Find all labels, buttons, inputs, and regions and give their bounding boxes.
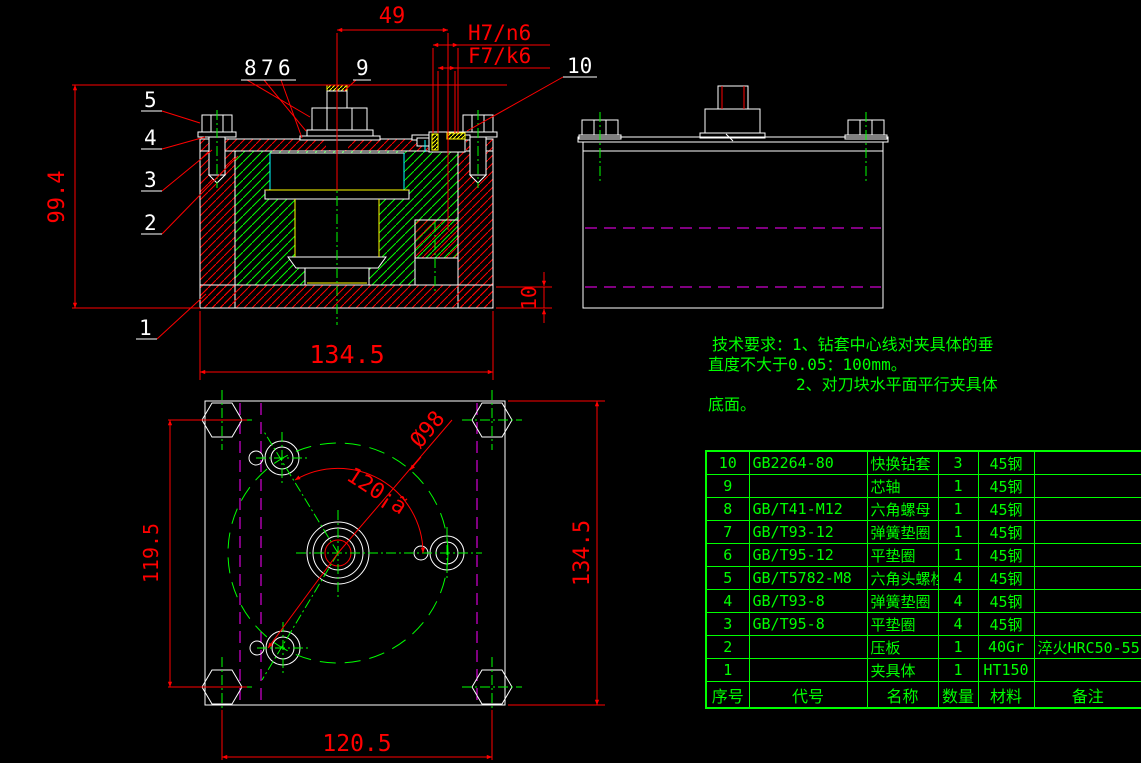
dim-99-4: 99.4	[45, 171, 70, 224]
bom-qty: 4	[938, 613, 978, 636]
bom-material: 45钢	[978, 567, 1034, 590]
bom-qty: 1	[938, 544, 978, 567]
bom-seq: 2	[706, 636, 749, 659]
bom-qty: 3	[938, 451, 978, 475]
bom-material: 45钢	[978, 544, 1034, 567]
bom-remark	[1034, 544, 1141, 567]
dim-49: 49	[379, 4, 406, 29]
bom-remark	[1034, 590, 1141, 613]
side-hidden-lines	[585, 228, 881, 287]
bom-code	[749, 475, 867, 498]
bom-name: 弹簧垫圈	[867, 590, 938, 613]
bom-header-code: 代号	[749, 682, 867, 709]
dim-dia98: Ø98	[406, 407, 451, 454]
bom-remark	[1034, 475, 1141, 498]
bom-material: 45钢	[978, 613, 1034, 636]
bom-seq: 9	[706, 475, 749, 498]
bom-name: 夹具体	[867, 659, 938, 682]
label-item-3: 3	[144, 168, 157, 192]
bom-header-name: 名称	[867, 682, 938, 709]
bom-code: GB/T5782-M8	[749, 567, 867, 590]
bom-code: GB2264-80	[749, 451, 867, 475]
bom-remark: 淬火HRC50-55	[1034, 636, 1141, 659]
bom-seq: 10	[706, 451, 749, 475]
bom-row-6: 6 GB/T95-12 平垫圈 1 45钢	[706, 544, 1141, 567]
bom-remark	[1034, 451, 1141, 475]
bom-name: 快换钻套	[867, 451, 938, 475]
cad-drawing-canvas: 49 H7/n6 F7/k6 99.4 134.5 10	[0, 0, 1141, 763]
label-item-4: 4	[144, 126, 157, 150]
bom-qty: 4	[938, 567, 978, 590]
bom-name: 平垫圈	[867, 544, 938, 567]
bom-name: 芯轴	[867, 475, 938, 498]
bom-qty: 1	[938, 636, 978, 659]
bom-seq: 3	[706, 613, 749, 636]
section-view	[198, 85, 497, 325]
dim-134-5-plan: 134.5	[570, 520, 595, 586]
bom-header-row: 序号 代号 名称 数量 材料 备注	[706, 682, 1141, 709]
bom-seq: 6	[706, 544, 749, 567]
bom-name: 压板	[867, 636, 938, 659]
label-item-5: 5	[144, 88, 157, 112]
locator-step-block	[415, 220, 458, 258]
bom-row-8: 8 GB/T41-M12 六角螺母 1 45钢	[706, 498, 1141, 521]
fit-f7k6: F7/k6	[468, 44, 531, 68]
bom-row-10: 10 GB2264-80 快换钻套 3 45钢	[706, 451, 1141, 475]
bom-seq: 8	[706, 498, 749, 521]
tech-req-line-2: 直度不大于0.05：100mm。	[708, 356, 907, 374]
dim-angle-120: 120¡ã	[342, 463, 411, 520]
bom-qty: 1	[938, 659, 978, 682]
bom-remark	[1034, 521, 1141, 544]
bom-material: 45钢	[978, 475, 1034, 498]
bom-code: GB/T41-M12	[749, 498, 867, 521]
bom-seq: 5	[706, 567, 749, 590]
bom-code: GB/T95-8	[749, 613, 867, 636]
bom-material: 45钢	[978, 521, 1034, 544]
fixture-body-bottom-slab	[200, 285, 493, 308]
dim-134-5-section: 134.5	[309, 340, 384, 369]
dim-10: 10	[517, 286, 541, 310]
bom-row-3: 3 GB/T95-8 平垫圈 4 45钢	[706, 613, 1141, 636]
plan-centerlines	[192, 390, 522, 717]
bom-qty: 1	[938, 498, 978, 521]
bom-row-1: 1 夹具体 1 HT150	[706, 659, 1141, 682]
tech-req-line-3: 2、对刀块水平面平行夹具体	[796, 376, 998, 394]
bom-header-remark: 备注	[1034, 682, 1141, 709]
side-view	[578, 86, 888, 308]
bom-material: 45钢	[978, 451, 1034, 475]
bom-material: 45钢	[978, 590, 1034, 613]
bom-header-qty: 数量	[938, 682, 978, 709]
fit-h7n6: H7/n6	[468, 21, 531, 45]
bom-row-2: 2 压板 1 40Gr 淬火HRC50-55	[706, 636, 1141, 659]
label-item-9: 9	[356, 56, 369, 80]
bom-remark	[1034, 613, 1141, 636]
stud-and-nut	[300, 85, 380, 150]
bom-table-wrap: 10 GB2264-80 快换钻套 3 45钢 9 芯轴 1 45钢 8 GB/…	[705, 450, 1141, 697]
bom-name: 弹簧垫圈	[867, 521, 938, 544]
bom-material: 45钢	[978, 498, 1034, 521]
label-item-8: 8	[244, 56, 257, 80]
bom-name: 六角螺母	[867, 498, 938, 521]
bom-qty: 1	[938, 475, 978, 498]
dim-119-5: 119.5	[139, 523, 163, 583]
dim-120-5: 120.5	[322, 731, 391, 757]
bom-seq: 7	[706, 521, 749, 544]
bom-remark	[1034, 659, 1141, 682]
side-center-boss	[700, 86, 765, 141]
bom-remark	[1034, 498, 1141, 521]
bom-name: 六角头螺栓	[867, 567, 938, 590]
plan-view	[192, 390, 522, 717]
bom-header-seq: 序号	[706, 682, 749, 709]
bom-seq: 1	[706, 659, 749, 682]
bom-code	[749, 636, 867, 659]
bom-qty: 4	[938, 590, 978, 613]
tech-req-line-1: 技术要求：1、钻套中心线对夹具体的垂	[712, 336, 994, 354]
bom-header-material: 材料	[978, 682, 1034, 709]
label-item-2: 2	[144, 211, 157, 235]
bom-code: GB/T95-12	[749, 544, 867, 567]
label-item-6: 6	[278, 56, 291, 80]
bom-material: 40Gr	[978, 636, 1034, 659]
tech-req-line-4: 底面。	[708, 396, 756, 414]
bom-name: 平垫圈	[867, 613, 938, 636]
label-item-10: 10	[567, 54, 592, 78]
bom-row-9: 9 芯轴 1 45钢	[706, 475, 1141, 498]
bom-qty: 1	[938, 521, 978, 544]
side-centerlines	[600, 112, 866, 183]
locator-step-recess	[415, 258, 458, 285]
label-item-1: 1	[139, 316, 152, 340]
side-body-outline	[583, 142, 883, 308]
bom-code: GB/T93-12	[749, 521, 867, 544]
bom-table: 10 GB2264-80 快换钻套 3 45钢 9 芯轴 1 45钢 8 GB/…	[705, 450, 1141, 709]
bom-code	[749, 659, 867, 682]
bom-code: GB/T93-8	[749, 590, 867, 613]
bom-row-5: 5 GB/T5782-M8 六角头螺栓 4 45钢	[706, 567, 1141, 590]
bom-row-4: 4 GB/T93-8 弹簧垫圈 4 45钢	[706, 590, 1141, 613]
plan-dimensions: Ø98 120¡ã 119.5 134.5 120.5	[139, 401, 605, 760]
label-item-7: 7	[261, 56, 274, 80]
bom-material: HT150	[978, 659, 1034, 682]
bom-row-7: 7 GB/T93-12 弹簧垫圈 1 45钢	[706, 521, 1141, 544]
bom-remark	[1034, 567, 1141, 590]
bom-seq: 4	[706, 590, 749, 613]
